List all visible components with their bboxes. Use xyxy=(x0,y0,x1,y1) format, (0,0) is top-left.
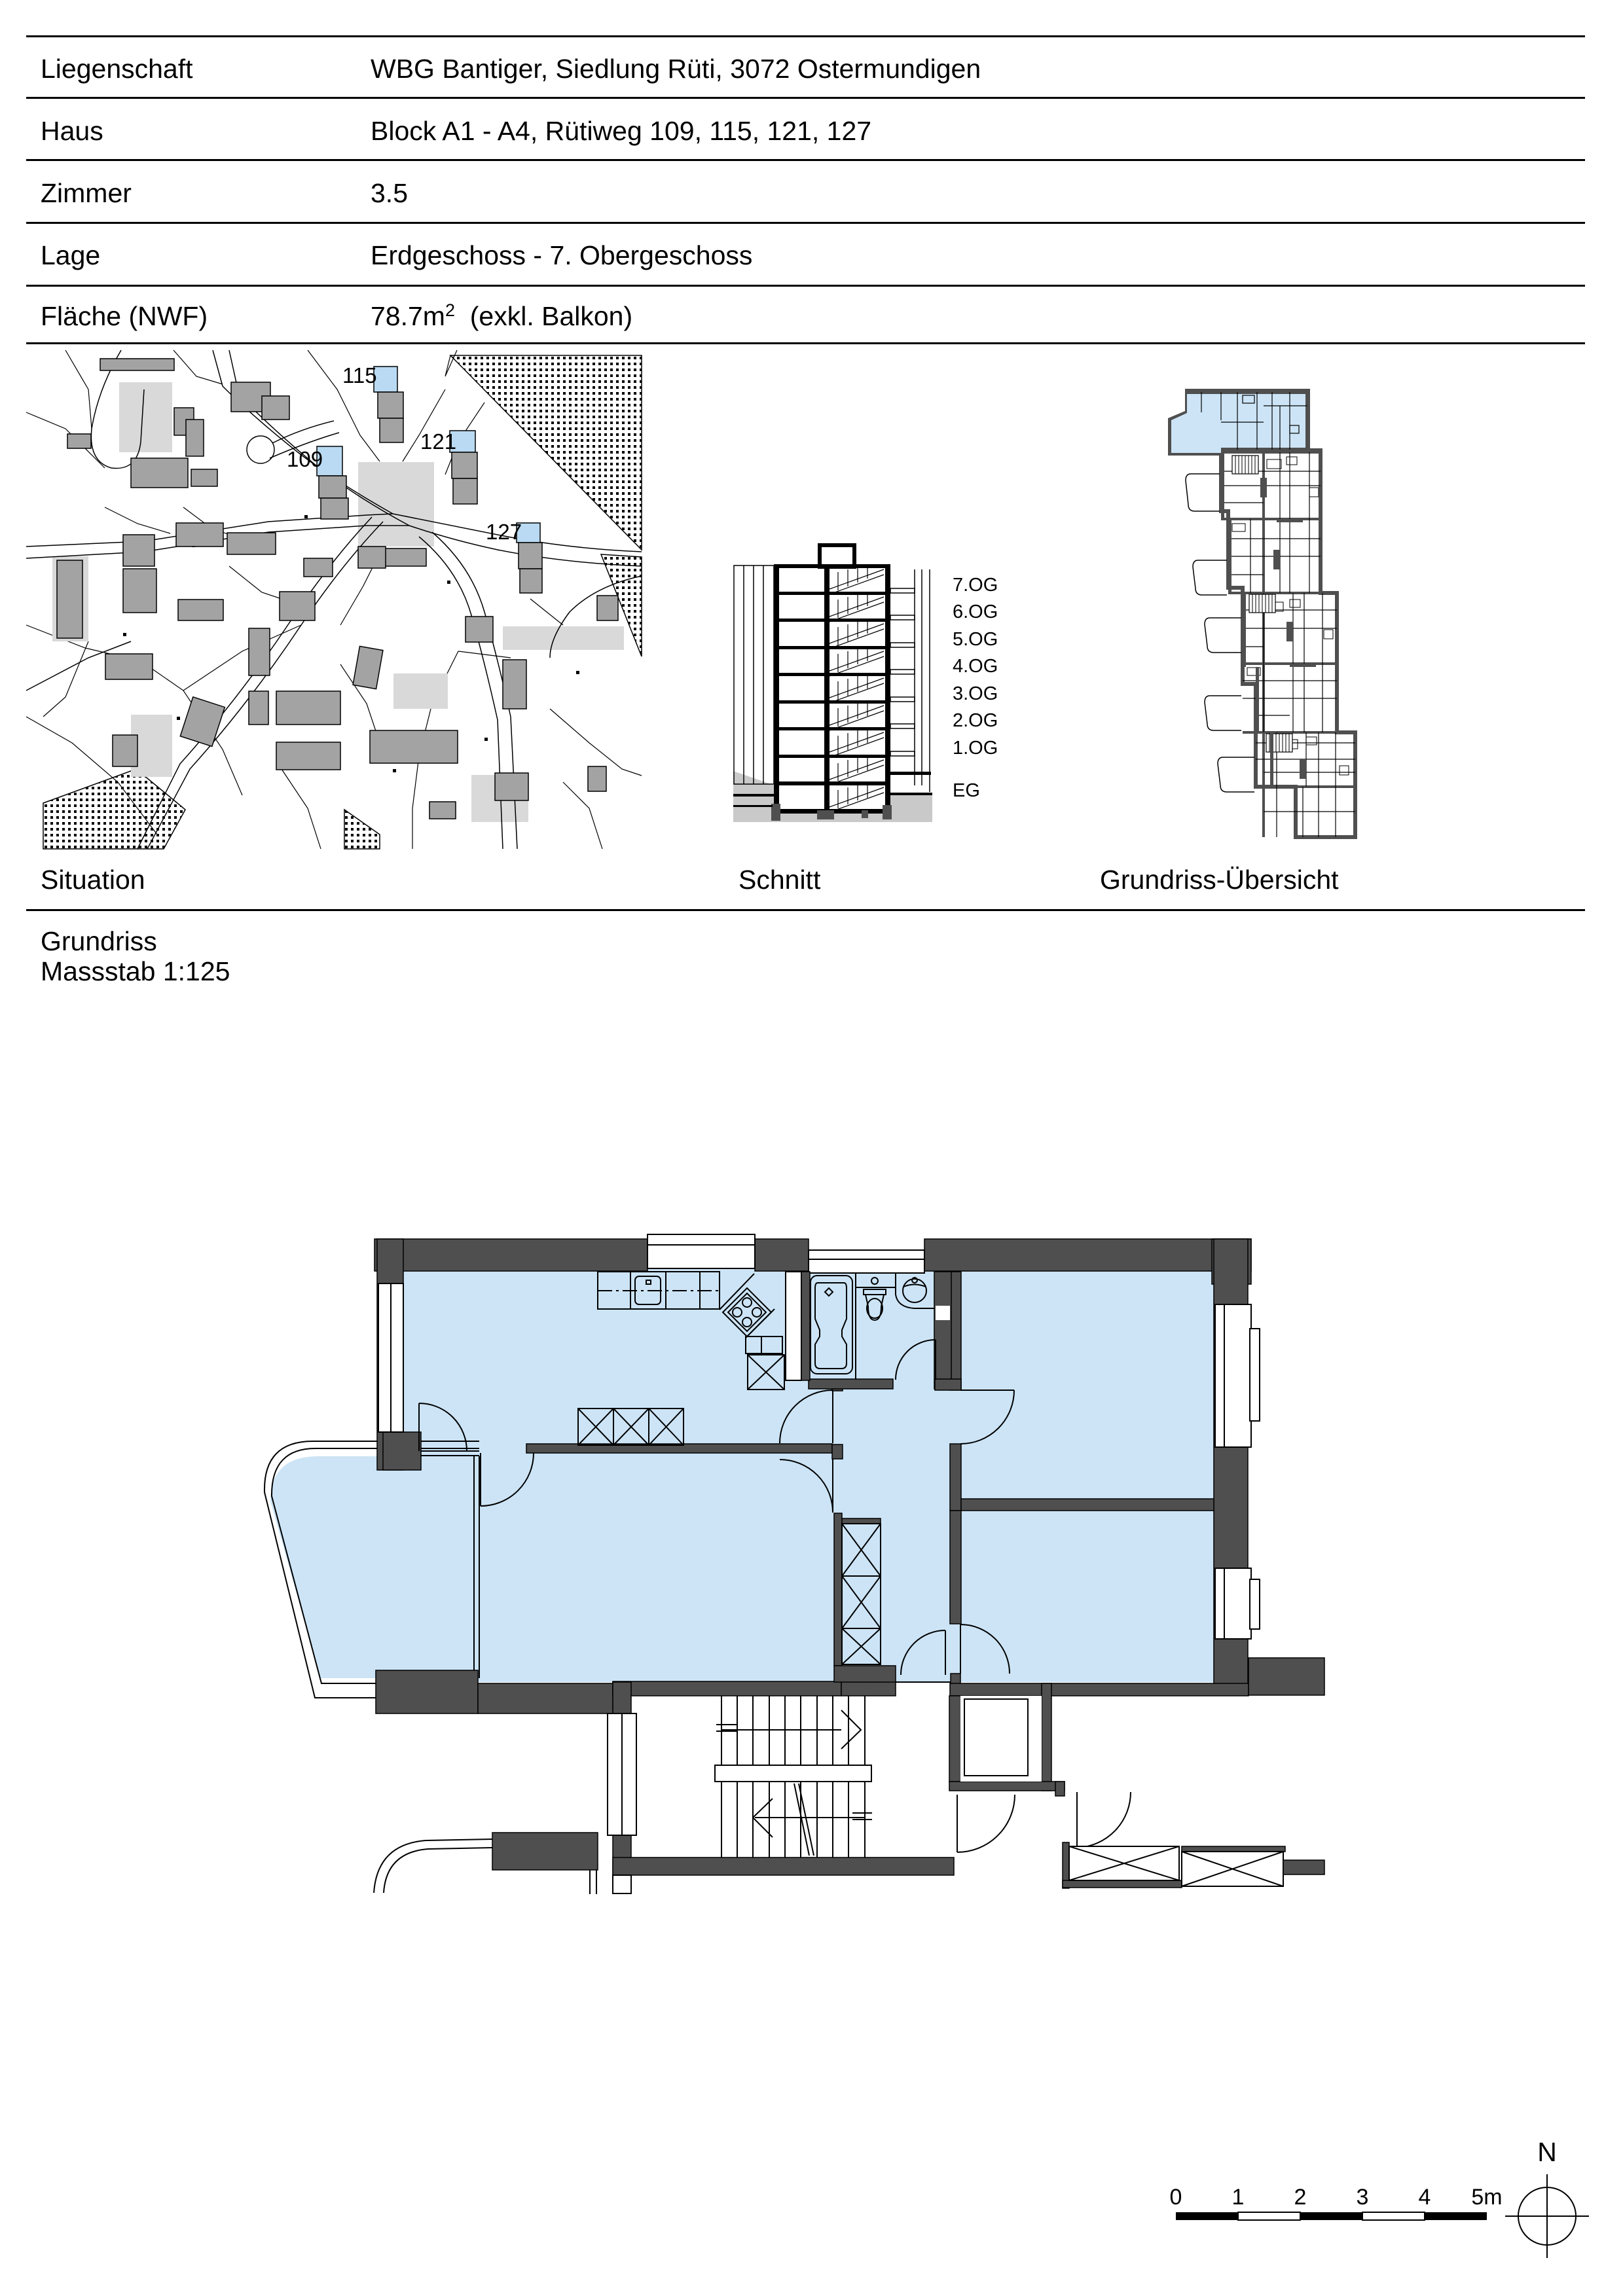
svg-text:3.OG: 3.OG xyxy=(953,683,998,704)
svg-text:3: 3 xyxy=(1357,2185,1369,2210)
svg-text:Erdgeschoss - 7. Obergeschoss: Erdgeschoss - 7. Obergeschoss xyxy=(371,240,752,270)
svg-text:121: 121 xyxy=(420,429,456,454)
svg-text:Lage: Lage xyxy=(41,240,100,270)
svg-text:2: 2 xyxy=(1294,2185,1307,2210)
svg-text:6.OG: 6.OG xyxy=(953,601,998,622)
svg-text:0: 0 xyxy=(1170,2185,1182,2210)
svg-text:Grundriss: Grundriss xyxy=(41,926,157,956)
svg-text:Haus: Haus xyxy=(41,116,103,146)
svg-text:78.7m2 (exkl. Balkon): 78.7m2 (exkl. Balkon) xyxy=(371,300,632,331)
svg-text:109: 109 xyxy=(287,447,323,471)
svg-text:115: 115 xyxy=(342,363,377,387)
svg-text:3.5: 3.5 xyxy=(371,178,408,208)
svg-text:Grundriss-Übersicht: Grundriss-Übersicht xyxy=(1100,865,1339,895)
svg-text:1: 1 xyxy=(1232,2185,1245,2210)
svg-text:4: 4 xyxy=(1419,2185,1431,2210)
svg-text:5.OG: 5.OG xyxy=(953,629,998,650)
svg-text:WBG Bantiger, Siedlung Rüti, 3: WBG Bantiger, Siedlung Rüti, 3072 Osterm… xyxy=(371,54,981,84)
svg-text:Zimmer: Zimmer xyxy=(41,178,132,208)
svg-text:Fläche (NWF): Fläche (NWF) xyxy=(41,301,208,331)
svg-text:Liegenschaft: Liegenschaft xyxy=(41,54,193,84)
svg-text:127: 127 xyxy=(486,520,522,544)
svg-text:7.OG: 7.OG xyxy=(953,575,998,596)
svg-text:1.OG: 1.OG xyxy=(953,738,998,759)
svg-text:Situation: Situation xyxy=(41,865,145,895)
svg-text:Block A1 - A4, Rütiweg 109, 11: Block A1 - A4, Rütiweg 109, 115, 121, 12… xyxy=(371,116,871,146)
svg-text:EG: EG xyxy=(953,780,980,801)
svg-text:2.OG: 2.OG xyxy=(953,710,998,731)
svg-text:4.OG: 4.OG xyxy=(953,656,998,677)
svg-text:Massstab 1:125: Massstab 1:125 xyxy=(41,956,230,986)
svg-text:Schnitt: Schnitt xyxy=(739,865,821,895)
svg-text:5m: 5m xyxy=(1471,2185,1502,2210)
svg-text:N: N xyxy=(1537,2137,1557,2167)
